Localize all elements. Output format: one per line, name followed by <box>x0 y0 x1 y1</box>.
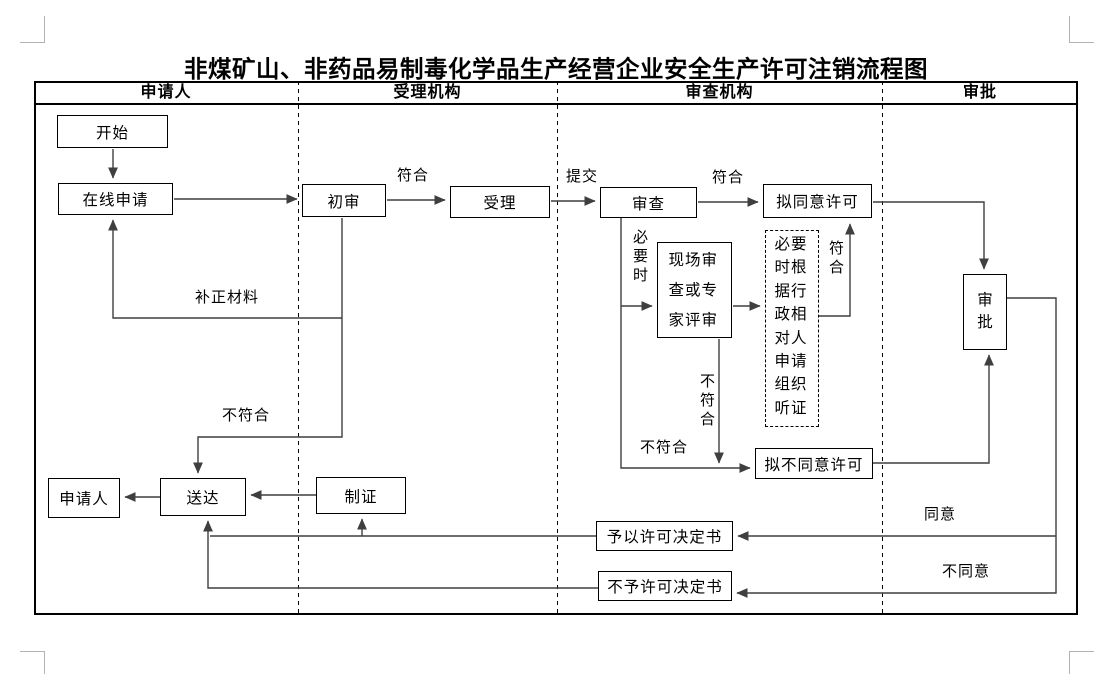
node-approval: 审批 <box>977 290 994 334</box>
lane-divider-3 <box>882 81 883 615</box>
label-conform-initial: 符合 <box>397 168 429 185</box>
node-grant-decision: 予以许可决定书 <box>596 521 733 551</box>
label-not-conform-onsite: 不符合 <box>700 373 716 430</box>
chart-border <box>34 81 1078 615</box>
label-not-conform-review: 不符合 <box>640 440 688 457</box>
label-not-conform-initial: 不符合 <box>222 408 270 425</box>
crop-mark-bottom-right-icon <box>1069 651 1094 674</box>
lane-header-reviewer: 审查机构 <box>557 84 882 102</box>
crop-mark-bottom-left-icon <box>20 651 45 674</box>
node-propose-approve: 拟同意许可 <box>763 184 872 218</box>
crop-mark-top-right-icon <box>1069 16 1094 43</box>
label-supplement: 补正材料 <box>195 290 259 307</box>
node-propose-disapprove: 拟不同意许可 <box>755 448 873 479</box>
flowchart-page: 非煤矿山、非药品易制毒化学品生产经营企业安全生产许可注销流程图 申请人 受理机构… <box>0 0 1112 675</box>
node-onsite-review: 现场审查或专家评审 <box>669 243 721 336</box>
node-deliver: 送达 <box>160 478 246 516</box>
label-conform-hearing: 符合 <box>829 240 845 278</box>
node-deny-decision: 不予许可决定书 <box>598 571 732 601</box>
lane-header-applicant: 申请人 <box>34 84 298 102</box>
node-start: 开始 <box>57 115 168 148</box>
lane-divider-2 <box>557 81 558 615</box>
node-initial-review: 初审 <box>302 184 386 217</box>
label-submit: 提交 <box>566 169 598 186</box>
label-disagree: 不同意 <box>942 564 990 581</box>
node-make-cert: 制证 <box>316 477 406 514</box>
lane-divider-1 <box>298 81 299 615</box>
lane-header-acceptor: 受理机构 <box>298 84 557 102</box>
lane-header-approver: 审批 <box>882 84 1078 102</box>
label-when-necessary: 必要时 <box>633 229 649 286</box>
node-review: 审查 <box>600 187 697 218</box>
label-conform-review: 符合 <box>712 170 744 187</box>
node-applicant: 申请人 <box>48 478 120 518</box>
node-accept: 受理 <box>450 186 550 218</box>
header-separator <box>34 103 1078 105</box>
page-title: 非煤矿山、非药品易制毒化学品生产经营企业安全生产许可注销流程图 <box>0 50 1112 84</box>
node-online-apply: 在线申请 <box>58 183 173 215</box>
crop-mark-top-left-icon <box>20 16 45 43</box>
label-agree: 同意 <box>924 507 956 524</box>
node-hearing: 必要时根据行政相对人申请组织听证 <box>775 231 810 420</box>
